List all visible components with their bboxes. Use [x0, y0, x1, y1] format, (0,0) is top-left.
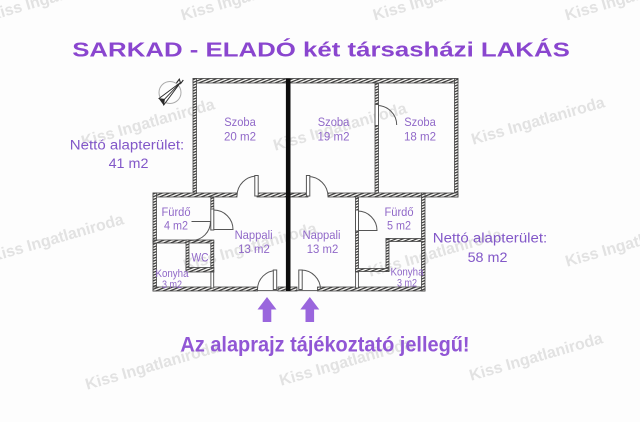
- svg-text:4 m2: 4 m2: [164, 219, 188, 233]
- svg-text:Szoba: Szoba: [404, 115, 436, 129]
- svg-text:Az alaprajz tájékoztató jelleg: Az alaprajz tájékoztató jellegű!: [180, 333, 469, 357]
- svg-text:Nappali: Nappali: [235, 228, 273, 242]
- svg-text:Nettó alapterület:: Nettó alapterület:: [433, 231, 547, 246]
- svg-text:13 m2: 13 m2: [307, 242, 339, 256]
- svg-text:Fürdő: Fürdő: [385, 205, 414, 219]
- svg-text:5 m2: 5 m2: [387, 219, 411, 233]
- svg-text:19 m2: 19 m2: [318, 130, 350, 144]
- svg-text:13 m2: 13 m2: [238, 242, 270, 256]
- svg-text:Fürdő: Fürdő: [162, 205, 191, 219]
- svg-text:20 m2: 20 m2: [224, 130, 256, 144]
- svg-text:18 m2: 18 m2: [404, 130, 436, 144]
- svg-text:Szoba: Szoba: [318, 115, 350, 129]
- svg-text:Nettó alapterület:: Nettó alapterület:: [70, 138, 184, 153]
- svg-text:WC: WC: [192, 251, 209, 265]
- svg-text:3 m2: 3 m2: [162, 279, 182, 291]
- svg-text:41 m2: 41 m2: [109, 155, 149, 171]
- svg-text:58 m2: 58 m2: [468, 249, 508, 265]
- svg-text:Szoba: Szoba: [224, 115, 256, 129]
- svg-text:SARKAD - ELADÓ két társasházi: SARKAD - ELADÓ két társasházi LAKÁS: [72, 37, 570, 61]
- svg-text:3 m2: 3 m2: [397, 278, 417, 290]
- svg-text:Nappali: Nappali: [303, 228, 341, 242]
